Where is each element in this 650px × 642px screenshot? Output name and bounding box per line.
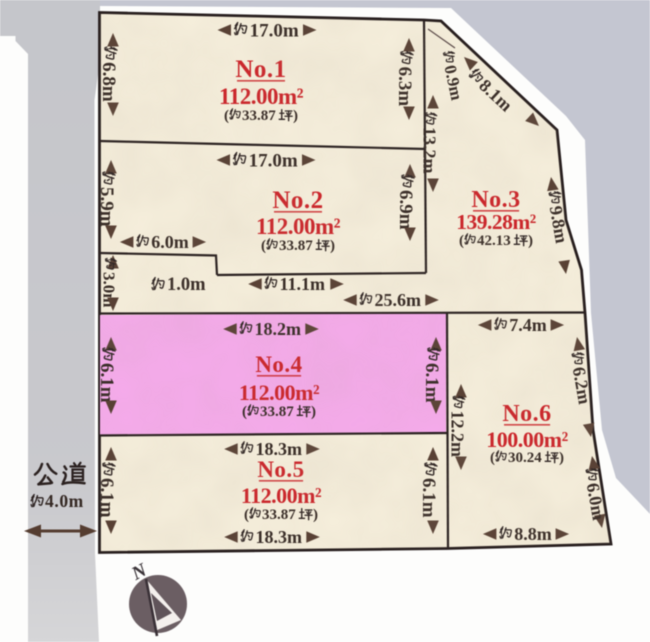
svg-text:4.0m: 4.0m [45, 491, 84, 511]
